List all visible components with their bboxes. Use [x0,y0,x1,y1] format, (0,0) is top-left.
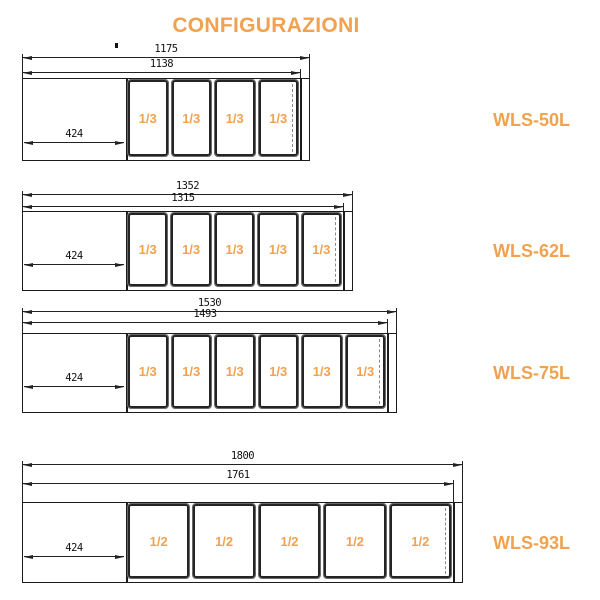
pan-label: 1/3 [226,111,244,126]
pan-label: 1/2 [346,534,364,549]
pan: 1/2 [128,504,189,578]
pan: 1/3 [302,335,342,408]
config-row-WLS-75L: 153014931/31/31/31/31/31/3424WLS-75L [0,0,600,600]
overall-width-dimension-label: 1175 [21,44,311,55]
extension-line-right-inner [300,69,301,78]
usable-width-dimension-arrow-left-icon [23,205,32,209]
usable-width-dimension-label: 1761 [21,470,455,481]
pan: 1/3 [128,80,168,156]
inner-right-line [453,503,455,582]
overall-width-dimension-line [23,311,396,312]
unit-outline [22,78,310,161]
depth-dimension-arrow-left-icon [24,555,33,559]
pan-label: 1/2 [215,534,233,549]
pan: 1/3 [215,80,255,156]
usable-width-dimension-arrow-right-icon [444,482,453,486]
overall-width-dimension-line [23,464,462,465]
extension-line-right-outer [309,54,310,78]
depth-dimension-line [24,142,124,143]
pan-container: 1/31/31/31/3 [128,80,298,156]
overall-width-dimension-arrow-left-icon [23,56,32,60]
pan: 1/2 [193,504,254,578]
overall-width-dimension-label: 1800 [21,451,464,462]
partition-line [126,503,128,582]
pan-label: 1/2 [411,534,429,549]
pan: 1/3 [259,335,299,408]
pan: 1/3 [259,80,299,156]
config-row-WLS-93L: 180017611/21/21/21/21/2424WLS-93L [0,0,600,600]
usable-width-dimension-arrow-left-icon [23,71,32,75]
depth-dimension-line [24,556,124,557]
pan: 1/3 [215,335,255,408]
pan-label: 1/2 [280,534,298,549]
pan-label: 1/3 [139,111,157,126]
model-label: WLS-62L [493,241,570,261]
depth-dimension-label: 424 [22,251,126,262]
usable-width-dimension-arrow-right-icon [378,321,387,325]
pan: 1/3 [171,213,210,286]
depth-dimension-arrow-right-icon [115,263,124,267]
overall-width-dimension-arrow-left-icon [23,193,32,197]
overall-width-dimension-arrow-left-icon [23,310,32,314]
inner-right-line [387,334,389,412]
extension-line-right-inner [387,319,388,333]
extension-line-left [22,308,23,333]
pan-label: 1/2 [150,534,168,549]
depth-dimension-arrow-right-icon [115,141,124,145]
usable-width-dimension-line [23,206,343,207]
pan-label: 1/3 [226,364,244,379]
extension-line-left [22,461,23,502]
usable-width-dimension-label: 1493 [21,309,389,320]
config-row-WLS-50L: 117511381/31/31/31/3424WLS-50L [0,0,600,600]
usable-width-dimension-arrow-right-icon [334,205,343,209]
configurations-diagram: CONFIGURAZIONI 117511381/31/31/31/3424WL… [0,0,600,600]
model-label: WLS-50L [493,110,570,130]
pan: 1/2 [390,504,451,578]
pan-label: 1/3 [312,242,330,257]
depth-dimension-arrow-right-icon [115,555,124,559]
model-label: WLS-75L [493,363,570,383]
pan: 1/3 [215,213,254,286]
extension-line-left [22,54,23,78]
pan-label: 1/3 [182,364,200,379]
pan: 1/3 [172,335,212,408]
overall-width-dimension-label: 1530 [21,298,398,309]
extension-line-right-outer [396,308,397,333]
extension-line-right-outer [352,191,353,211]
usable-width-dimension-line [23,72,300,73]
overall-width-dimension-line [23,57,309,58]
depth-dimension-arrow-left-icon [24,385,33,389]
pan-label: 1/3 [225,242,243,257]
pan-container: 1/31/31/31/31/3 [128,213,341,286]
usable-width-dimension-line [23,483,453,484]
pan: 1/3 [346,335,386,408]
pan-label: 1/3 [182,111,200,126]
extension-line-right-outer [462,461,463,502]
pan: 1/3 [302,213,341,286]
overall-width-dimension-arrow-right-icon [300,56,309,60]
extension-line-right-inner [343,203,344,211]
stray-tick-mark [115,43,118,48]
partition-line [126,334,128,412]
depth-dimension-line [24,386,124,387]
overall-width-dimension-arrow-right-icon [453,463,462,467]
usable-width-dashed-line [335,217,336,282]
pan-label: 1/3 [269,242,287,257]
pan: 1/3 [128,213,167,286]
usable-width-dimension-label: 1138 [21,59,302,70]
partition-line [126,212,128,290]
unit-outline [22,211,353,291]
pan-label: 1/3 [139,364,157,379]
depth-dimension-label: 424 [22,129,126,140]
inner-right-line [343,212,345,290]
pan-label: 1/3 [356,364,374,379]
pan-label: 1/3 [269,364,287,379]
depth-dimension-label: 424 [22,543,126,554]
depth-dimension-arrow-right-icon [115,385,124,389]
depth-dimension-label: 424 [22,373,126,384]
pan-label: 1/3 [269,111,287,126]
pan: 1/3 [128,335,168,408]
depth-dimension-arrow-left-icon [24,263,33,267]
pan: 1/2 [259,504,320,578]
overall-width-dimension-arrow-left-icon [23,463,32,467]
pan-container: 1/21/21/21/21/2 [128,504,451,578]
extension-line-right-inner [453,480,454,502]
pan-label: 1/3 [139,242,157,257]
pan: 1/3 [258,213,297,286]
inner-right-line [300,79,302,160]
usable-width-dashed-line [379,339,380,404]
usable-width-dimension-arrow-left-icon [23,321,32,325]
usable-width-dashed-line [445,508,446,574]
overall-width-dimension-label: 1352 [21,181,354,192]
pan: 1/3 [172,80,212,156]
usable-width-dimension-arrow-left-icon [23,482,32,486]
unit-outline [22,502,463,583]
usable-width-dimension-line [23,322,387,323]
usable-width-dimension-arrow-right-icon [291,71,300,75]
pan: 1/2 [324,504,385,578]
usable-width-dashed-line [292,84,293,152]
unit-outline [22,333,397,413]
config-row-WLS-62L: 135213151/31/31/31/31/3424WLS-62L [0,0,600,600]
pan-label: 1/3 [313,364,331,379]
partition-line [126,79,128,160]
usable-width-dimension-label: 1315 [21,193,345,204]
depth-dimension-line [24,264,124,265]
page-title: CONFIGURAZIONI [0,14,532,38]
overall-width-dimension-line [23,194,352,195]
extension-line-left [22,191,23,211]
model-label: WLS-93L [493,533,570,553]
overall-width-dimension-arrow-right-icon [343,193,352,197]
depth-dimension-arrow-left-icon [24,141,33,145]
pan-label: 1/3 [182,242,200,257]
overall-width-dimension-arrow-right-icon [387,310,396,314]
pan-container: 1/31/31/31/31/31/3 [128,335,385,408]
